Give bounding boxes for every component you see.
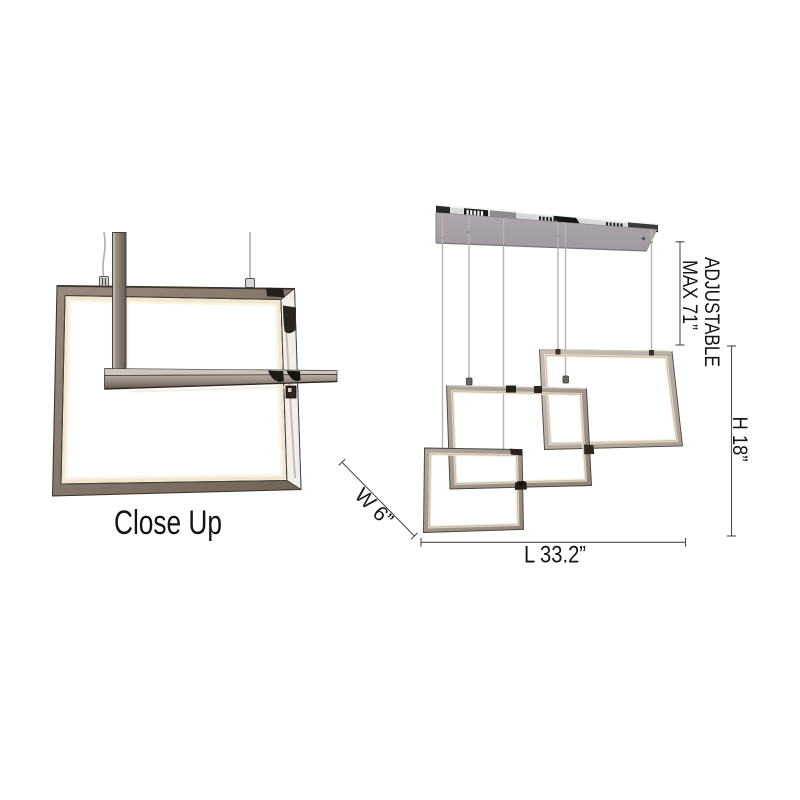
svg-text:Close Up: Close Up [114, 504, 222, 542]
svg-text:ADJUSTABLE: ADJUSTABLE [700, 257, 723, 367]
svg-text:L 33.2”: L 33.2” [524, 542, 586, 569]
svg-text:H 18”: H 18” [728, 417, 751, 462]
svg-text:MAX 71”: MAX 71” [678, 260, 701, 330]
